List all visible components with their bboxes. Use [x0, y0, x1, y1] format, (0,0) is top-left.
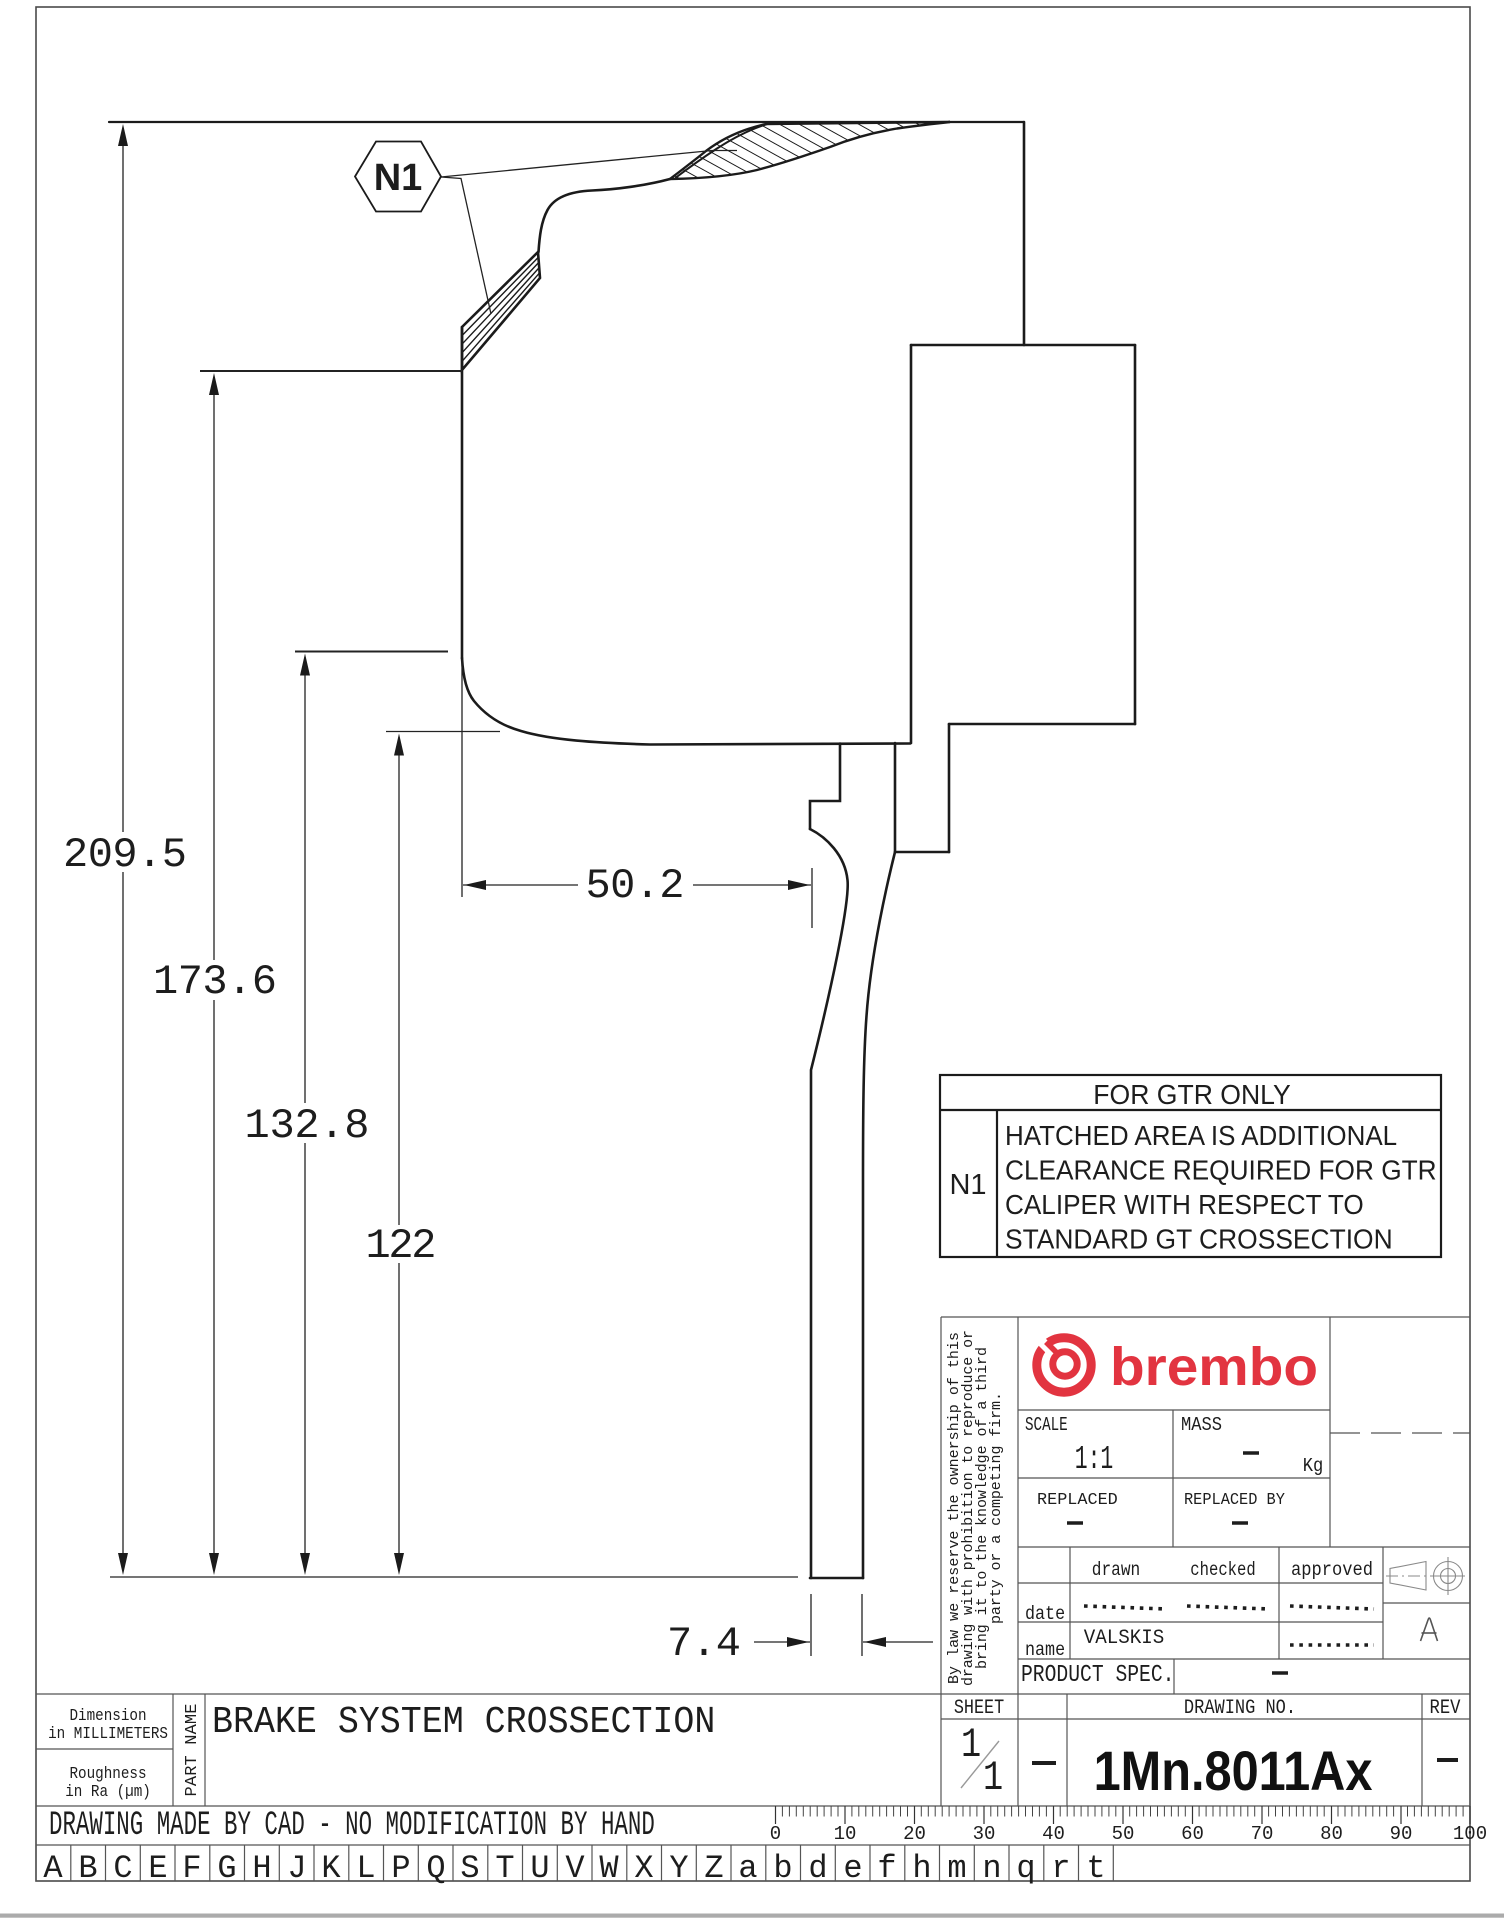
svg-text:30: 30 [973, 1823, 996, 1845]
svg-text:m: m [947, 1850, 966, 1887]
svg-text:a: a [738, 1850, 757, 1887]
svg-text:Dimension: Dimension [69, 1706, 146, 1725]
svg-text:50.2: 50.2 [586, 862, 685, 910]
svg-text:PART NAME: PART NAME [183, 1704, 202, 1797]
svg-text:STANDARD GT CROSSECTION: STANDARD GT CROSSECTION [1005, 1223, 1393, 1255]
svg-text:t: t [1086, 1850, 1105, 1887]
svg-text:V: V [565, 1850, 585, 1887]
svg-text:0: 0 [770, 1823, 781, 1845]
svg-text:drawn: drawn [1092, 1560, 1140, 1582]
svg-text:U: U [530, 1850, 549, 1887]
svg-text:1Mn.8011Ax: 1Mn.8011Ax [1094, 1740, 1373, 1803]
svg-text:N1: N1 [374, 157, 423, 199]
svg-text:date: date [1025, 1604, 1065, 1625]
svg-text:r: r [1051, 1850, 1070, 1887]
svg-text:BRAKE SYSTEM CROSSECTION: BRAKE SYSTEM CROSSECTION [212, 1701, 715, 1744]
svg-text:J: J [287, 1850, 306, 1887]
svg-text:in Ra (µm): in Ra (µm) [65, 1782, 151, 1801]
svg-text:7.4: 7.4 [667, 1620, 741, 1668]
svg-text:L: L [356, 1850, 375, 1887]
svg-text:REPLACED BY: REPLACED BY [1184, 1490, 1285, 1509]
svg-text:A: A [43, 1850, 63, 1887]
svg-text:B: B [78, 1850, 97, 1887]
svg-text:E: E [148, 1850, 167, 1887]
svg-text:F: F [182, 1850, 201, 1887]
svg-text:FOR GTR ONLY: FOR GTR ONLY [1093, 1078, 1290, 1110]
svg-text:in MILLIMETERS: in MILLIMETERS [48, 1724, 168, 1743]
svg-text:PRODUCT SPEC.: PRODUCT SPEC. [1021, 1661, 1174, 1688]
svg-text:SHEET: SHEET [954, 1697, 1004, 1720]
svg-text:f: f [877, 1850, 896, 1887]
svg-text:b: b [773, 1850, 792, 1887]
svg-text:HATCHED AREA IS ADDITIONAL: HATCHED AREA IS ADDITIONAL [1005, 1120, 1397, 1151]
svg-text:name: name [1025, 1640, 1065, 1661]
svg-text:party or a competing firm.: party or a competing firm. [988, 1392, 1005, 1624]
svg-text:100: 100 [1453, 1823, 1487, 1845]
svg-text:VALSKIS: VALSKIS [1084, 1627, 1165, 1649]
svg-text:80: 80 [1320, 1823, 1343, 1845]
svg-text:Kg: Kg [1303, 1456, 1324, 1477]
svg-text:20: 20 [903, 1823, 926, 1845]
svg-text:Roughness: Roughness [69, 1764, 146, 1783]
svg-text:S: S [460, 1850, 479, 1887]
svg-text:H: H [252, 1850, 271, 1887]
svg-text:1: 1 [961, 1722, 981, 1769]
svg-text:W: W [599, 1850, 619, 1887]
svg-text:MASS: MASS [1181, 1415, 1222, 1436]
svg-text:DRAWING MADE BY CAD - NO MODIF: DRAWING MADE BY CAD - NO MODIFICATION BY… [49, 1806, 655, 1845]
svg-text:132.8: 132.8 [245, 1102, 370, 1150]
svg-text:e: e [843, 1850, 862, 1887]
svg-text:REPLACED: REPLACED [1037, 1491, 1118, 1510]
svg-text:brembo: brembo [1110, 1337, 1318, 1397]
svg-text:SCALE: SCALE [1025, 1415, 1068, 1436]
svg-text:T: T [495, 1850, 514, 1887]
svg-text:d: d [808, 1850, 827, 1887]
svg-text:1:1: 1:1 [1075, 1442, 1114, 1479]
svg-text:Z: Z [704, 1850, 723, 1887]
svg-text:70: 70 [1251, 1823, 1274, 1845]
svg-text:Q: Q [426, 1850, 445, 1887]
svg-text:10: 10 [834, 1823, 857, 1845]
svg-text:checked: checked [1190, 1561, 1255, 1582]
svg-text:122: 122 [366, 1222, 437, 1270]
svg-text:P: P [391, 1850, 410, 1887]
svg-text:approved: approved [1291, 1560, 1373, 1581]
svg-text:Y: Y [669, 1850, 688, 1887]
svg-text:n: n [982, 1850, 1001, 1887]
svg-text:G: G [217, 1850, 236, 1887]
svg-text:K: K [321, 1850, 341, 1887]
svg-text:N1: N1 [949, 1169, 986, 1201]
svg-text:q: q [1016, 1850, 1035, 1887]
svg-text:40: 40 [1042, 1823, 1065, 1845]
svg-text:h: h [912, 1850, 931, 1887]
svg-text:X: X [634, 1850, 653, 1887]
svg-text:C: C [113, 1850, 132, 1887]
svg-text:60: 60 [1181, 1823, 1204, 1845]
svg-text:CALIPER WITH RESPECT TO: CALIPER WITH RESPECT TO [1005, 1188, 1364, 1220]
svg-text:173.6: 173.6 [153, 958, 277, 1006]
svg-text:1: 1 [983, 1755, 1003, 1802]
svg-text:REV: REV [1430, 1696, 1462, 1720]
svg-text:90: 90 [1390, 1823, 1413, 1845]
svg-text:50: 50 [1112, 1823, 1135, 1845]
svg-text:209.5: 209.5 [63, 831, 187, 879]
svg-text:CLEARANCE REQUIRED FOR GTR: CLEARANCE REQUIRED FOR GTR [1005, 1154, 1437, 1186]
svg-text:DRAWING NO.: DRAWING NO. [1184, 1697, 1296, 1720]
